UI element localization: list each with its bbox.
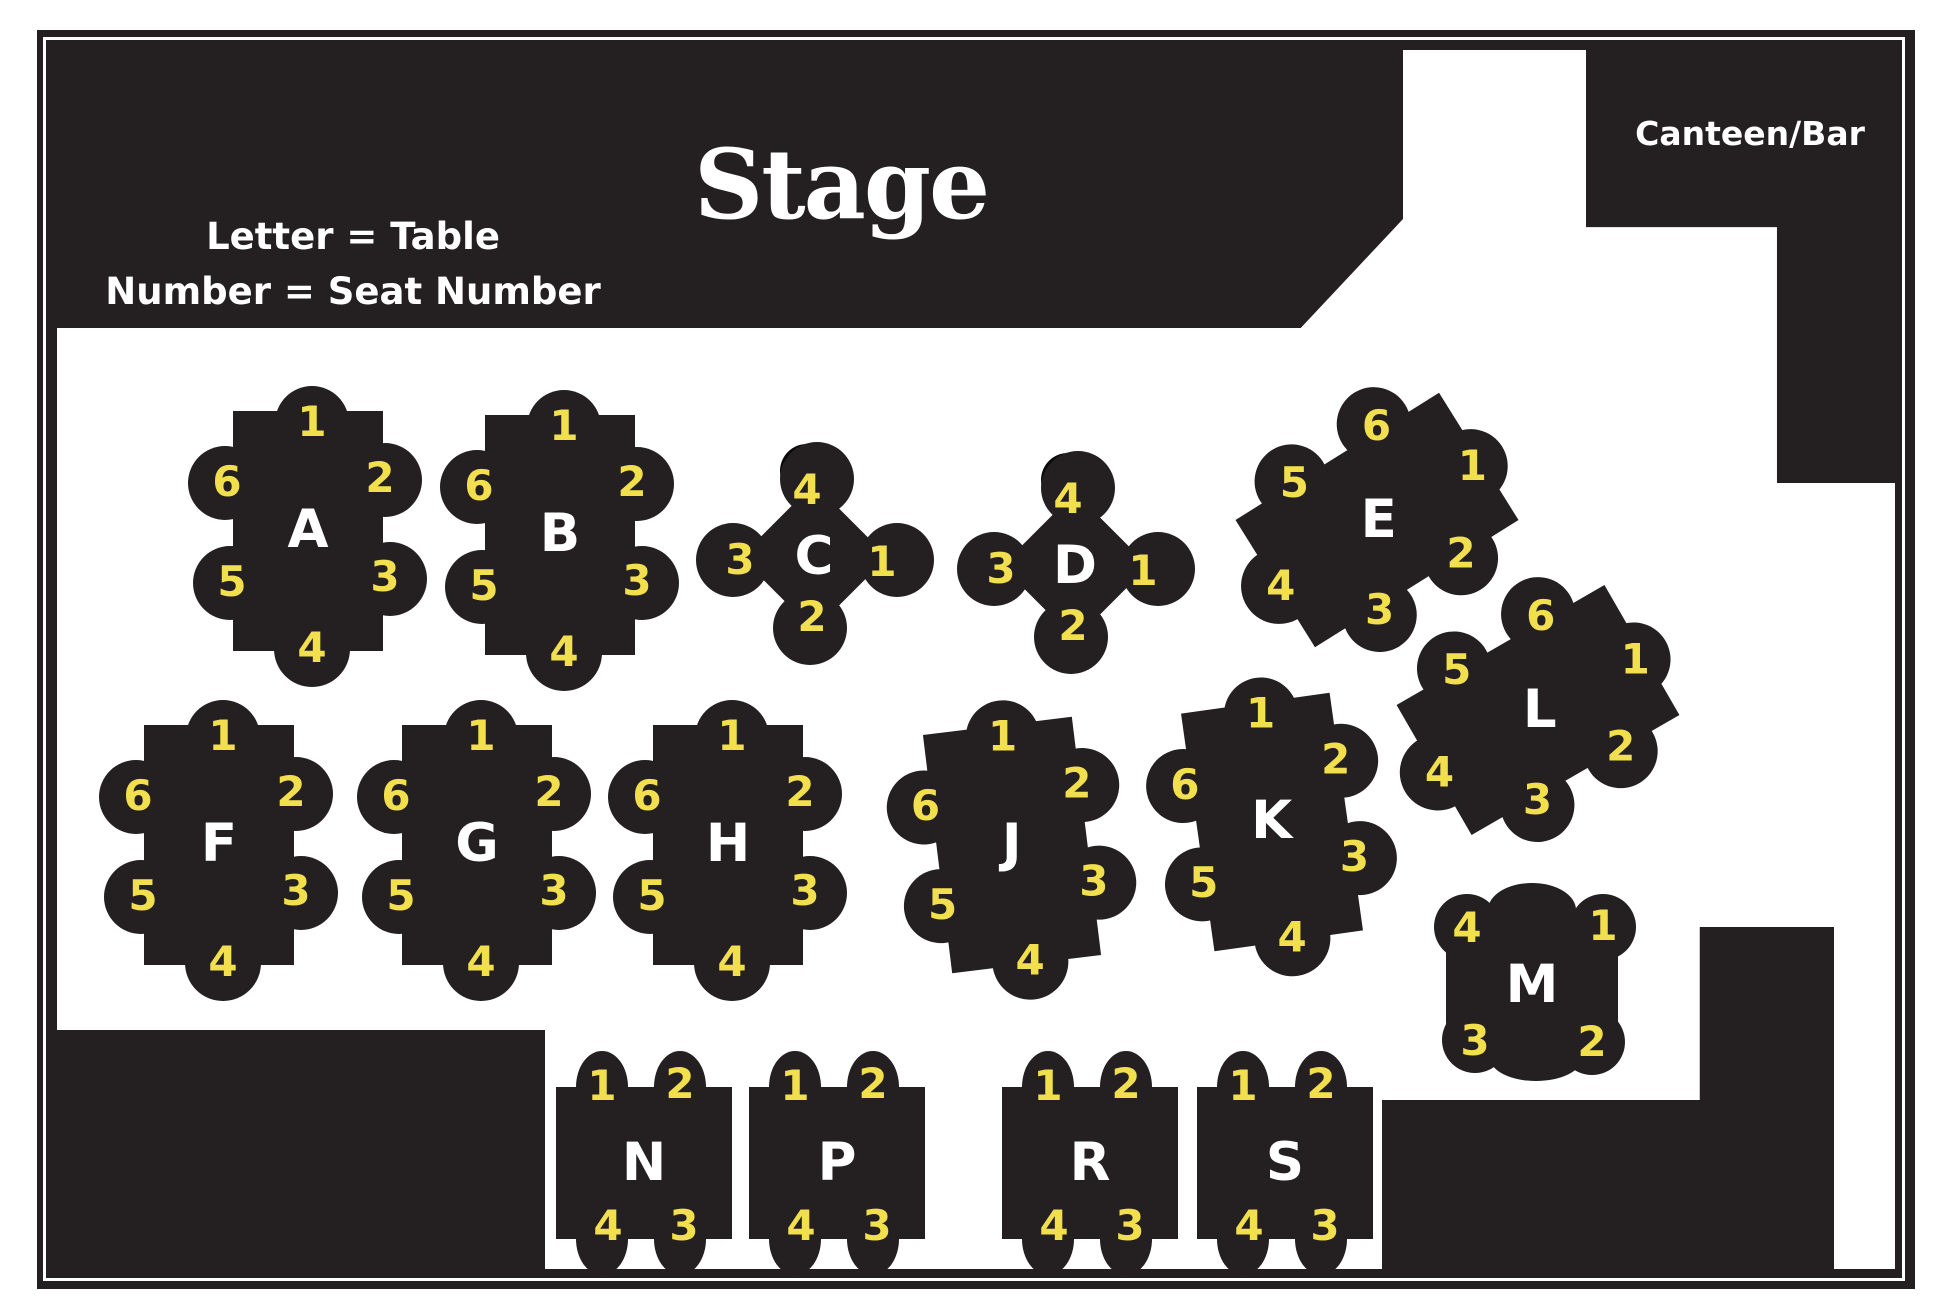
seat-L-2: 2 xyxy=(1593,717,1649,773)
seat-C-2: 2 xyxy=(784,588,840,644)
table-G: 123456G xyxy=(402,725,552,965)
seat-E-5: 5 xyxy=(1266,454,1322,510)
seat-G-4: 4 xyxy=(453,933,509,989)
seat-K-6: 6 xyxy=(1157,756,1213,812)
seat-L-4: 4 xyxy=(1412,743,1468,799)
table-letter-B: B xyxy=(520,498,600,568)
seat-L-5: 5 xyxy=(1429,641,1485,697)
seat-G-3: 3 xyxy=(526,862,582,918)
seat-P-3: 3 xyxy=(849,1197,905,1253)
table-C: 4123C xyxy=(714,457,914,657)
table-S: 1234S xyxy=(1197,1087,1373,1239)
table-letter-F: F xyxy=(179,808,259,878)
seat-R-3: 3 xyxy=(1102,1197,1158,1253)
seat-A-4: 4 xyxy=(284,619,340,675)
seat-L-1: 1 xyxy=(1607,630,1663,686)
stage-label: Stage xyxy=(591,128,1091,241)
seat-E-3: 3 xyxy=(1352,581,1408,637)
table-letter-S: S xyxy=(1245,1127,1325,1197)
seat-M-4: 4 xyxy=(1439,899,1495,955)
seat-J-6: 6 xyxy=(898,777,954,833)
seat-F-4: 4 xyxy=(195,933,251,989)
table-B: 123456B xyxy=(485,415,635,655)
seat-M-1: 1 xyxy=(1575,897,1631,953)
seating-chart: Stage Letter = Table Number = Seat Numbe… xyxy=(0,0,1946,1312)
table-letter-L: L xyxy=(1500,674,1580,744)
seat-H-4: 4 xyxy=(704,933,760,989)
seat-N-1: 1 xyxy=(574,1057,630,1113)
seat-F-6: 6 xyxy=(110,767,166,823)
seat-A-2: 2 xyxy=(352,449,408,505)
seat-H-6: 6 xyxy=(619,767,675,823)
table-K: 123456K xyxy=(1181,693,1363,952)
seat-A-5: 5 xyxy=(204,553,260,609)
seat-D-2: 2 xyxy=(1045,597,1101,653)
seat-E-4: 4 xyxy=(1253,557,1309,613)
table-letter-D: D xyxy=(1035,530,1115,600)
seat-G-2: 2 xyxy=(521,763,577,819)
seat-S-2: 2 xyxy=(1293,1055,1349,1111)
seat-A-3: 3 xyxy=(357,548,413,604)
seat-B-2: 2 xyxy=(604,453,660,509)
table-F: 123456F xyxy=(144,725,294,965)
seat-P-4: 4 xyxy=(773,1197,829,1253)
seat-B-4: 4 xyxy=(536,623,592,679)
table-letter-C: C xyxy=(774,521,854,591)
table-D: 4123D xyxy=(975,466,1175,666)
seat-C-3: 3 xyxy=(712,531,768,587)
seat-N-3: 3 xyxy=(656,1197,712,1253)
table-letter-G: G xyxy=(437,808,517,878)
table-R: 1234R xyxy=(1002,1087,1178,1239)
seat-B-3: 3 xyxy=(609,552,665,608)
seat-C-4: 4 xyxy=(779,461,835,517)
seat-F-5: 5 xyxy=(115,867,171,923)
table-P: 1234P xyxy=(749,1087,925,1239)
seat-L-3: 3 xyxy=(1510,771,1566,827)
seat-R-1: 1 xyxy=(1020,1057,1076,1113)
seat-G-1: 1 xyxy=(453,707,509,763)
legend: Letter = Table Number = Seat Number xyxy=(92,210,614,320)
seat-K-5: 5 xyxy=(1176,854,1232,910)
table-H: 123456H xyxy=(653,725,803,965)
seat-B-6: 6 xyxy=(451,457,507,513)
seat-E-1: 1 xyxy=(1444,437,1500,493)
table-letter-N: N xyxy=(604,1127,684,1197)
seat-B-1: 1 xyxy=(536,397,592,453)
table-A: 123456A xyxy=(233,411,383,651)
table-N: 1234N xyxy=(556,1087,732,1239)
seat-D-4: 4 xyxy=(1040,470,1096,526)
seat-J-1: 1 xyxy=(975,707,1031,763)
seat-M-3: 3 xyxy=(1447,1012,1503,1068)
seat-E-6: 6 xyxy=(1348,397,1404,453)
table-letter-P: P xyxy=(797,1127,877,1197)
seat-J-5: 5 xyxy=(915,876,971,932)
seat-K-3: 3 xyxy=(1327,828,1383,884)
seat-A-1: 1 xyxy=(284,393,340,449)
seat-K-4: 4 xyxy=(1264,908,1320,964)
table-letter-M: M xyxy=(1492,949,1572,1019)
wall-block-bottom-left xyxy=(57,1030,545,1269)
seat-N-2: 2 xyxy=(652,1055,708,1111)
seat-J-2: 2 xyxy=(1049,755,1105,811)
seat-H-1: 1 xyxy=(704,707,760,763)
seat-H-3: 3 xyxy=(777,862,833,918)
seat-F-1: 1 xyxy=(195,707,251,763)
seat-J-4: 4 xyxy=(1002,932,1058,988)
seat-P-1: 1 xyxy=(767,1057,823,1113)
seat-N-4: 4 xyxy=(580,1197,636,1253)
table-letter-K: K xyxy=(1232,785,1312,855)
seat-L-6: 6 xyxy=(1513,587,1569,643)
table-letter-A: A xyxy=(268,494,348,564)
seat-F-2: 2 xyxy=(263,763,319,819)
seat-A-6: 6 xyxy=(199,453,255,509)
seat-M-2: 2 xyxy=(1564,1013,1620,1069)
table-J: 123456J xyxy=(923,717,1101,973)
seat-C-1: 1 xyxy=(854,533,910,589)
seat-H-5: 5 xyxy=(624,867,680,923)
seat-G-5: 5 xyxy=(373,867,429,923)
canteen-bar-label: Canteen/Bar xyxy=(1600,114,1900,153)
seat-J-3: 3 xyxy=(1066,852,1122,908)
seat-G-6: 6 xyxy=(368,767,424,823)
table-letter-E: E xyxy=(1339,484,1419,554)
table-M: 4132M xyxy=(1432,894,1632,1074)
legend-line1: Letter = Table xyxy=(92,210,614,265)
seat-S-3: 3 xyxy=(1297,1197,1353,1253)
table-letter-J: J xyxy=(972,808,1052,878)
seat-D-1: 1 xyxy=(1115,542,1171,598)
legend-line2: Number = Seat Number xyxy=(92,265,614,320)
seat-R-4: 4 xyxy=(1026,1197,1082,1253)
seat-P-2: 2 xyxy=(845,1055,901,1111)
seat-F-3: 3 xyxy=(268,862,324,918)
seat-K-2: 2 xyxy=(1308,731,1364,787)
seat-S-4: 4 xyxy=(1221,1197,1277,1253)
seat-S-1: 1 xyxy=(1215,1057,1271,1113)
seat-D-3: 3 xyxy=(973,540,1029,596)
seat-H-2: 2 xyxy=(772,763,828,819)
seat-E-2: 2 xyxy=(1433,524,1489,580)
seat-R-2: 2 xyxy=(1098,1055,1154,1111)
seat-B-5: 5 xyxy=(456,557,512,613)
table-letter-H: H xyxy=(688,808,768,878)
table-letter-R: R xyxy=(1050,1127,1130,1197)
seat-K-1: 1 xyxy=(1233,685,1289,741)
